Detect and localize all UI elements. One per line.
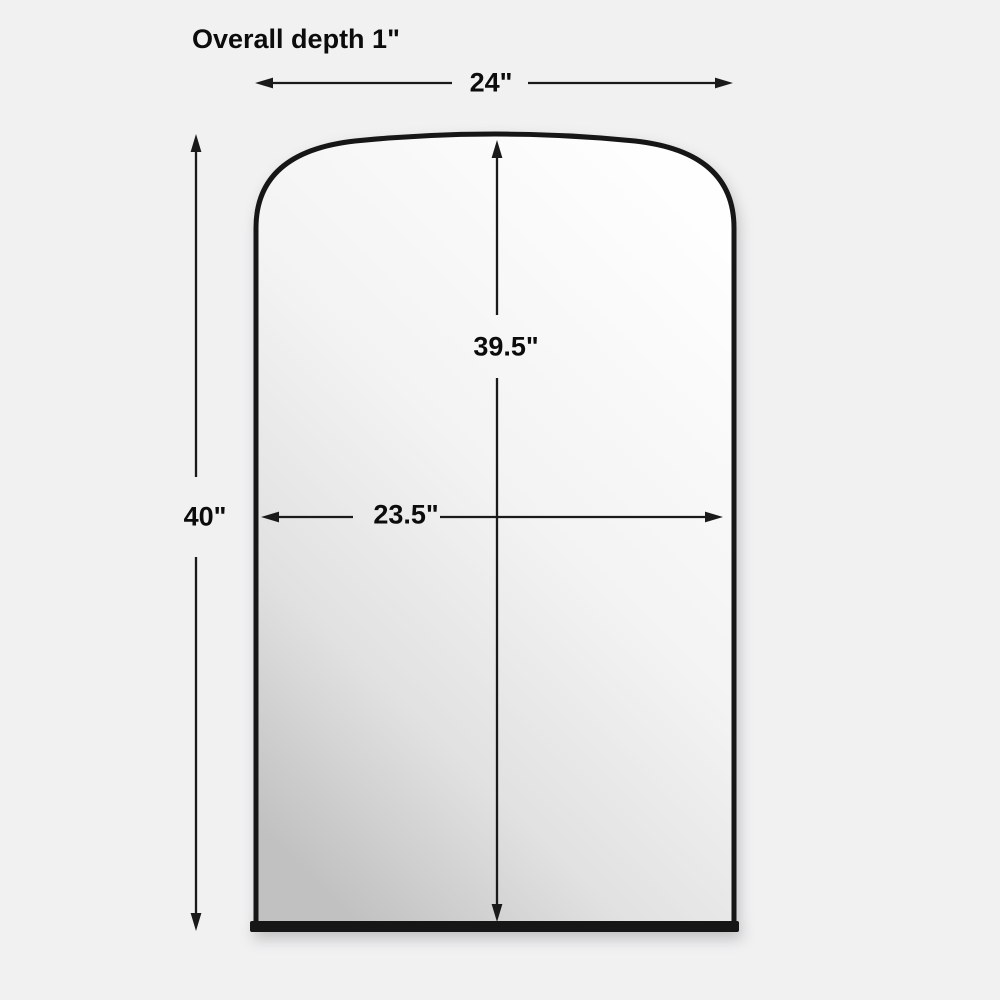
mirror-glass: [256, 134, 734, 928]
mirror: [250, 134, 739, 932]
overall-depth-label: Overall depth 1": [192, 24, 400, 55]
mirror-width-label: 23.5": [373, 500, 438, 531]
dimension-overall-height: [191, 134, 202, 931]
arrow-up-icon: [191, 134, 202, 152]
overall-width-label: 24": [470, 68, 513, 99]
dimension-diagram: Overall depth 1" 24" 40" 39.5" 23.5": [0, 0, 1000, 1000]
arrow-down-icon: [191, 913, 202, 931]
mirror-height-label: 39.5": [473, 332, 538, 363]
diagram-canvas: [0, 0, 1000, 1000]
arrow-right-icon: [715, 78, 733, 89]
arrow-left-icon: [255, 78, 273, 89]
mirror-bottom-frame: [250, 921, 739, 932]
overall-height-label: 40": [184, 502, 227, 533]
